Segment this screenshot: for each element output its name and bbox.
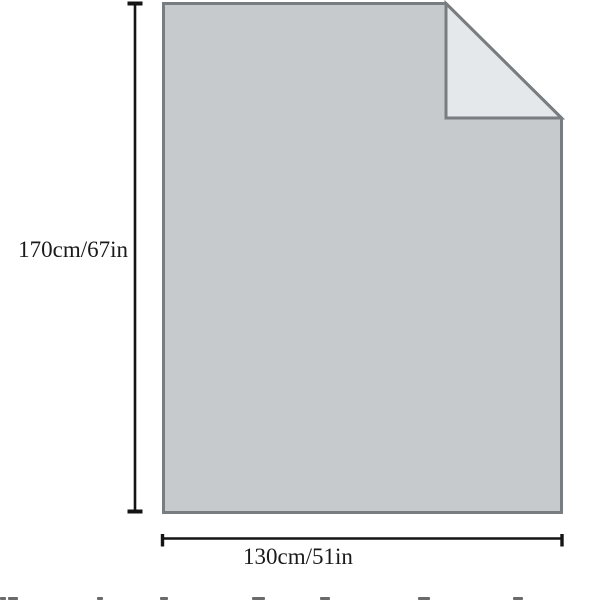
folded-corner (446, 4, 562, 119)
dimension-diagram: 170cm/67in 130cm/51in (0, 0, 600, 600)
height-label: 170cm/67in (18, 237, 128, 262)
width-label: 130cm/51in (243, 544, 353, 569)
cropped-text-remnants (0, 596, 600, 600)
